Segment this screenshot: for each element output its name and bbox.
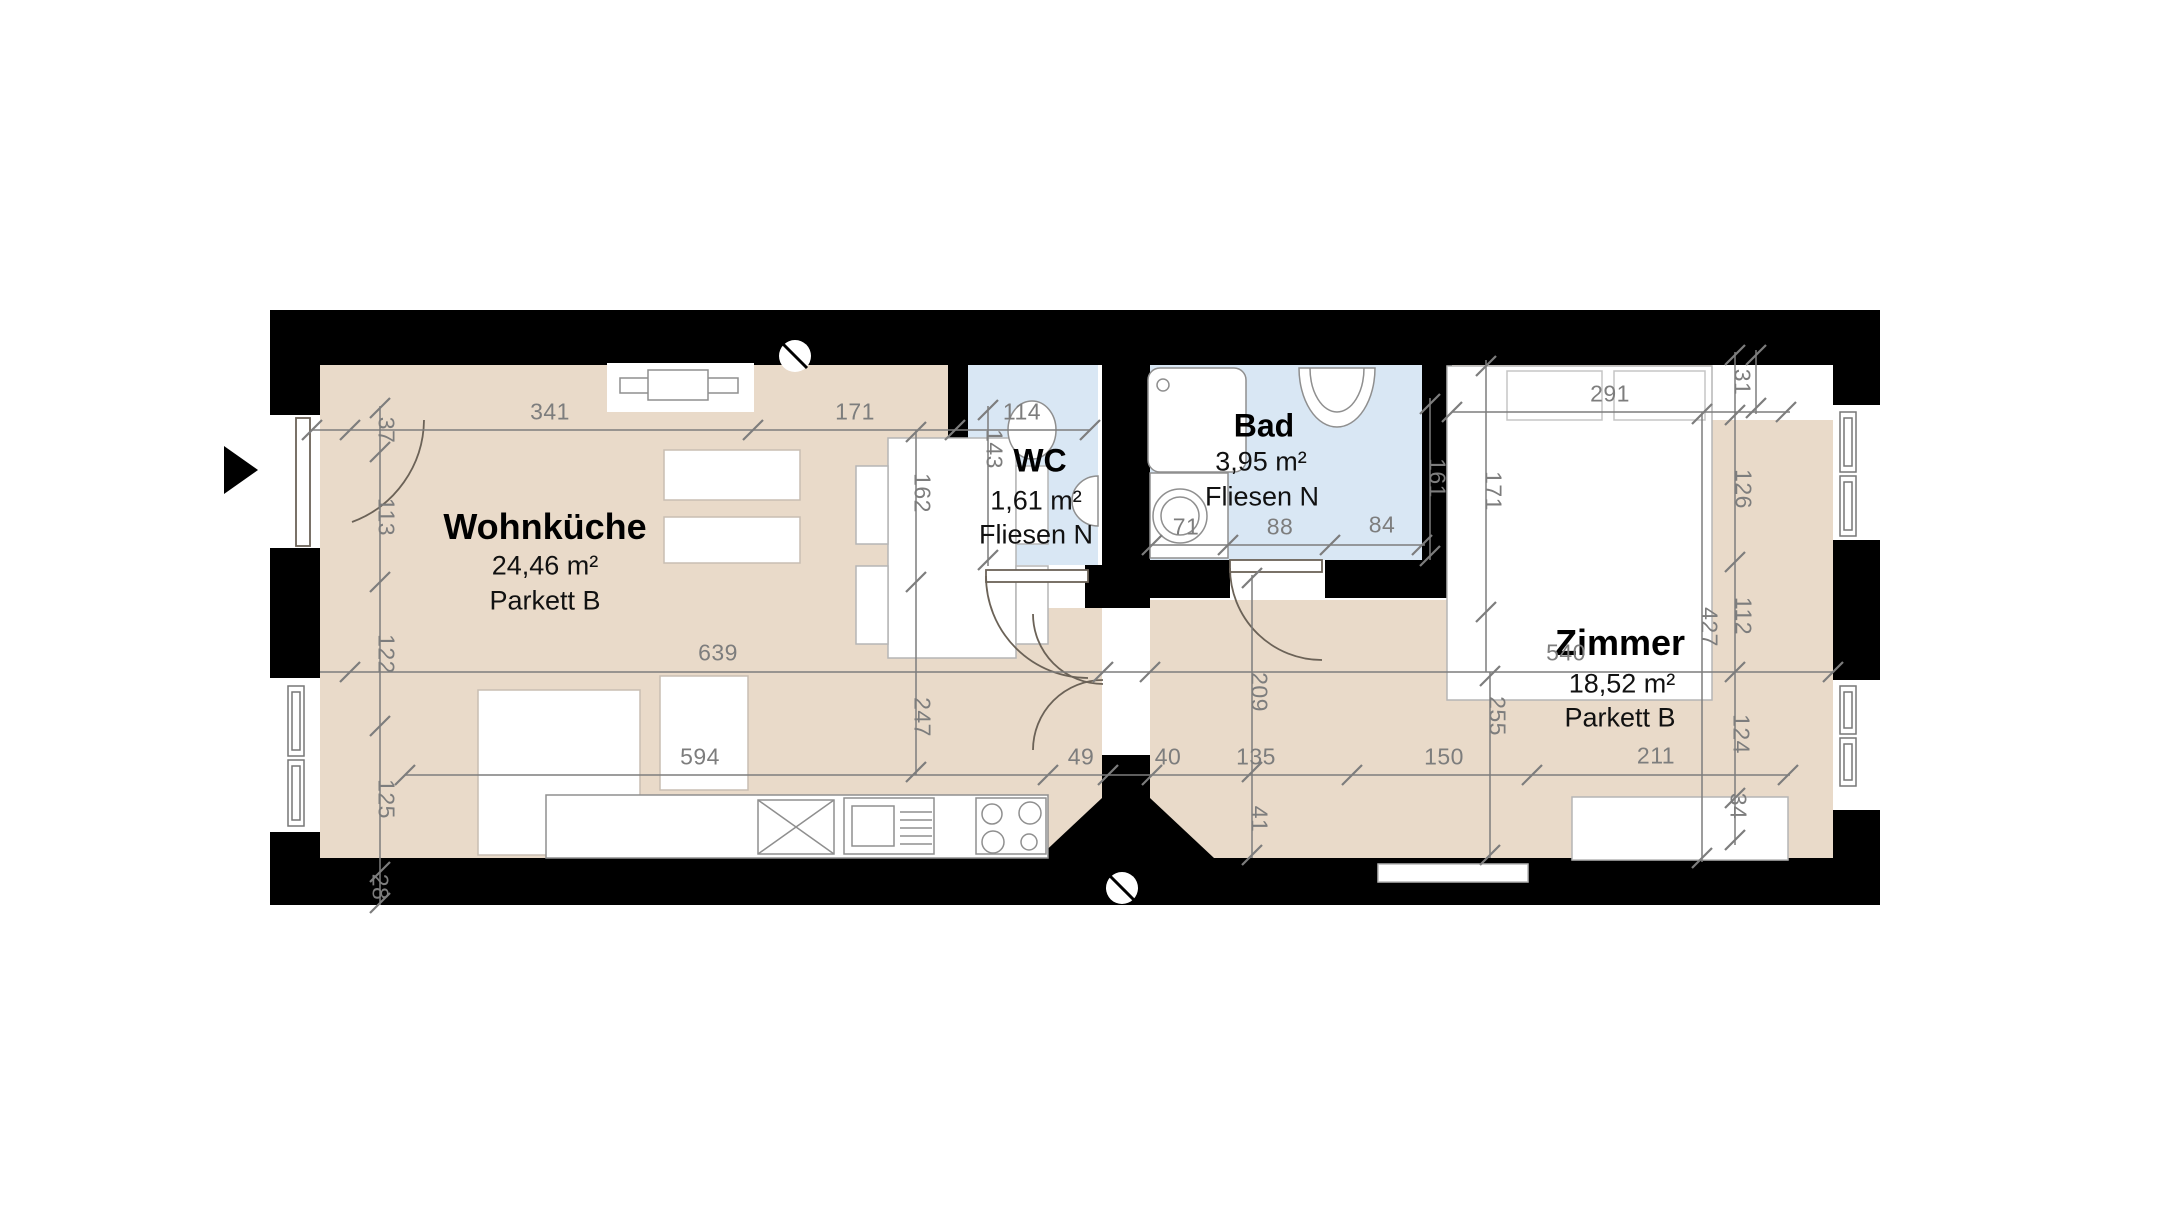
room-name-wc: WC <box>1013 443 1066 480</box>
kitchen-sink <box>852 806 894 846</box>
dim-label: 37 <box>373 417 400 444</box>
room-floor-wc: Fliesen N <box>979 520 1093 551</box>
dim-label: 162 <box>909 473 936 513</box>
dim-label: 247 <box>909 697 936 737</box>
dim-label: 540 <box>1546 640 1586 667</box>
wall-top <box>270 310 1880 365</box>
dim-label: 209 <box>1246 672 1273 712</box>
wall-wc-right-column <box>1102 365 1150 608</box>
radiator <box>1378 864 1528 882</box>
window-casement-icon <box>1844 744 1852 780</box>
room-area-wohnkueche: 24,46 m² <box>492 551 599 582</box>
wall-below-passage <box>1102 755 1150 858</box>
dim-label: 124 <box>1728 714 1755 754</box>
dim-label: 40 <box>1155 744 1182 771</box>
floor-plan-drawing <box>0 0 2167 1218</box>
dim-label: 125 <box>373 779 400 819</box>
wall-bad-bottom-right <box>1325 560 1422 598</box>
dim-label: 113 <box>373 498 400 536</box>
chair <box>856 566 888 644</box>
window-casement-icon <box>1844 482 1852 530</box>
dim-label: 71 <box>1173 514 1200 541</box>
wc-door-leaf <box>986 570 1088 582</box>
window-casement-icon <box>1844 418 1852 466</box>
dim-label: 171 <box>1480 471 1507 511</box>
dim-label: 594 <box>680 744 720 771</box>
dim-label: 341 <box>530 399 570 426</box>
window-casement-icon <box>292 692 300 750</box>
room-floor-zimmer: Parkett B <box>1564 703 1675 734</box>
dim-label: 112 <box>1730 597 1757 635</box>
dim-label: 49 <box>1068 744 1095 771</box>
dim-label: 255 <box>1484 696 1511 736</box>
sideboard-detail <box>648 370 708 400</box>
room-floor-wohnkueche: Parkett B <box>489 586 600 617</box>
dim-label: 122 <box>373 634 400 674</box>
room-name-wohnkueche: Wohnküche <box>443 506 646 548</box>
dim-label: 150 <box>1424 744 1464 771</box>
room-area-zimmer: 18,52 m² <box>1569 669 1676 700</box>
room-area-wc: 1,61 m² <box>990 486 1082 517</box>
entrance-door-leaf <box>296 418 310 546</box>
room-floor-bad: Fliesen N <box>1205 482 1319 513</box>
chair <box>856 466 888 544</box>
wall-bad-bottom-left <box>1150 560 1230 598</box>
entrance-door-opening <box>270 415 320 548</box>
dim-label: 161 <box>1424 458 1451 498</box>
passage-opening <box>1102 608 1150 755</box>
dim-label: 88 <box>1267 514 1294 541</box>
dim-label: 135 <box>1236 744 1276 771</box>
bench <box>664 450 800 500</box>
bench <box>664 517 800 563</box>
wall-right <box>1833 310 1880 905</box>
dim-label: 84 <box>1369 512 1396 539</box>
armchair <box>660 676 748 790</box>
floor-zimmer-vestibule <box>1150 600 1452 858</box>
dim-label: 28 <box>367 874 394 901</box>
dim-label: 639 <box>698 640 738 667</box>
dim-label: 171 <box>835 399 875 426</box>
wall-bottom <box>270 858 1880 905</box>
room-area-bad: 3,95 m² <box>1215 447 1307 478</box>
dim-label: 34 <box>1725 793 1752 820</box>
dim-label: 427 <box>1696 607 1723 647</box>
room-name-bad: Bad <box>1234 408 1294 445</box>
dresser <box>1572 797 1788 860</box>
dim-label: 291 <box>1590 381 1630 408</box>
window-casement-icon <box>292 766 300 820</box>
dim-label: 126 <box>1730 469 1757 509</box>
floor-plan-canvas: Wohnküche 24,46 m² Parkett B WC 1,61 m² … <box>0 0 2167 1218</box>
dim-label: 114 <box>1003 399 1041 426</box>
window-casement-icon <box>1844 692 1852 728</box>
bad-door-leaf <box>1230 560 1322 572</box>
dim-label: 31 <box>1729 369 1756 396</box>
dim-label: 143 <box>981 429 1008 469</box>
dim-label: 41 <box>1246 806 1273 833</box>
dim-label: 211 <box>1637 743 1675 770</box>
entrance-arrow-icon <box>224 446 258 494</box>
